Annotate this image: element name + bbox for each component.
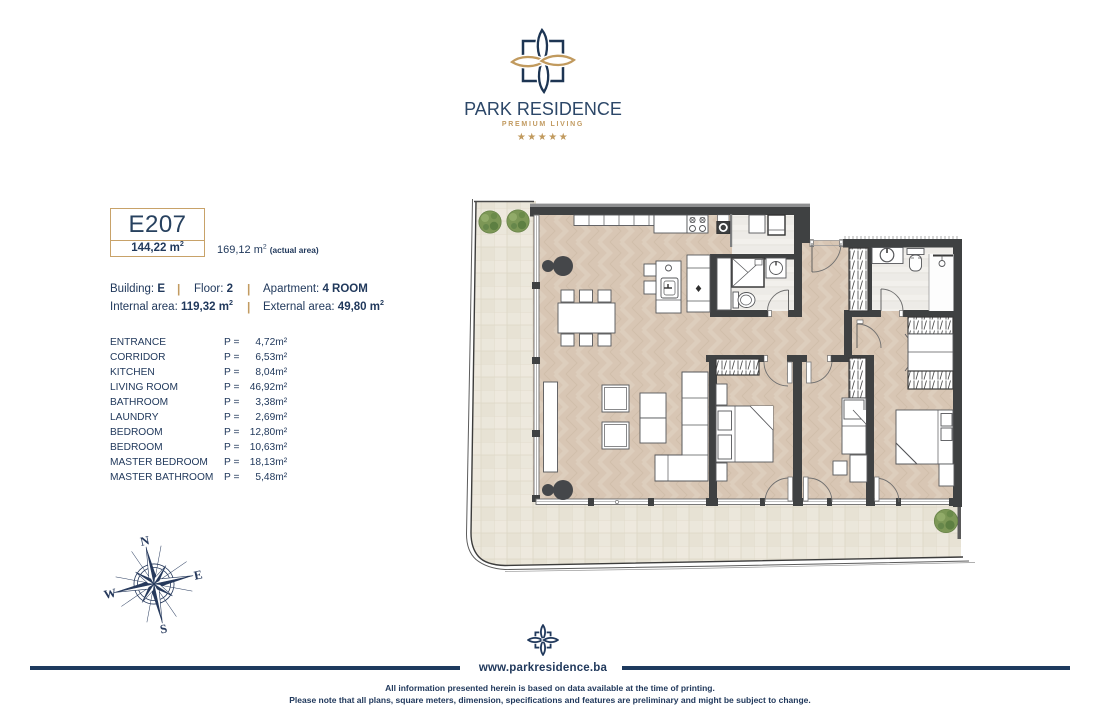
svg-text:N: N (139, 533, 151, 549)
svg-text:S: S (159, 621, 169, 636)
svg-text:E: E (193, 567, 204, 582)
svg-text:W: W (103, 586, 119, 602)
